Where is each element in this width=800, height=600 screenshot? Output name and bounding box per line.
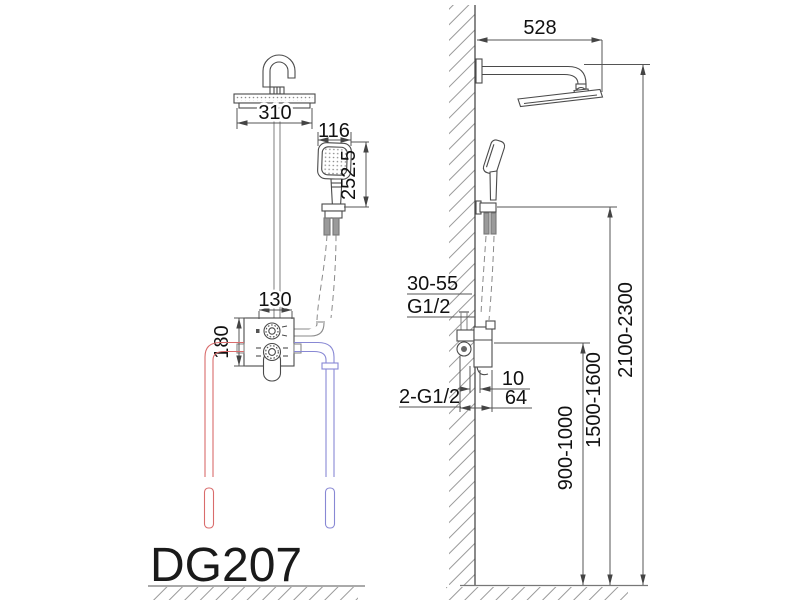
dim-arm-reach-label: 528 <box>523 17 556 39</box>
wall-section <box>449 5 475 585</box>
dim-overall-height-range: 2100-2300 <box>584 65 650 586</box>
shower-hose-side <box>481 236 494 320</box>
shower-head-side <box>518 90 603 107</box>
shower-arm-hook <box>263 55 295 87</box>
model-label: DG207 <box>150 539 302 592</box>
shower-hose-front <box>317 235 336 320</box>
side-view: 528 <box>399 5 650 600</box>
dim-overall-height-range-label: 2100-2300 <box>615 282 637 378</box>
valve-body-side <box>474 327 492 367</box>
label-embed-depth-text: 30-55 <box>407 273 458 295</box>
dim-hand-width: 116 <box>318 120 351 146</box>
dim-hand-width-label: 116 <box>318 120 350 142</box>
dim-head-width-label: 310 <box>258 102 291 124</box>
hose-outlet-elbow <box>294 322 325 336</box>
drawing-canvas: 310 116 252.5 <box>0 0 800 600</box>
label-outlet-thread-text: G1/2 <box>407 296 450 318</box>
hose-connector <box>324 218 330 235</box>
front-view: 310 116 252.5 <box>148 55 369 600</box>
label-inlet-thread: 2-G1/2 <box>399 386 461 408</box>
hand-shower-bracket <box>322 204 345 211</box>
dim-offset-large-label: 64 <box>505 387 527 409</box>
hot-water-pipe <box>205 343 245 529</box>
floor-section-side <box>446 586 648 600</box>
dim-valve-width-label: 130 <box>258 289 291 311</box>
dim-hand-length: 252.5 <box>338 142 369 207</box>
overhead-shower-front <box>234 55 315 318</box>
dim-hand-length-label: 252.5 <box>338 150 360 200</box>
label-inlet-thread-text: 2-G1/2 <box>399 386 460 408</box>
dim-holder-height-range-label: 1500-1600 <box>583 352 605 448</box>
cold-water-pipe <box>294 343 338 529</box>
dim-valve-width: 130 <box>258 289 292 319</box>
technical-drawing: 310 116 252.5 <box>0 0 800 600</box>
dim-arm-reach: 528 <box>477 17 602 92</box>
hand-shower-side <box>476 139 506 234</box>
mixer-valve-front <box>237 318 301 381</box>
hand-shower-holder-side <box>480 203 496 212</box>
dim-valve-height-range-label: 900-1000 <box>555 406 577 491</box>
shower-arm-side <box>476 59 603 107</box>
